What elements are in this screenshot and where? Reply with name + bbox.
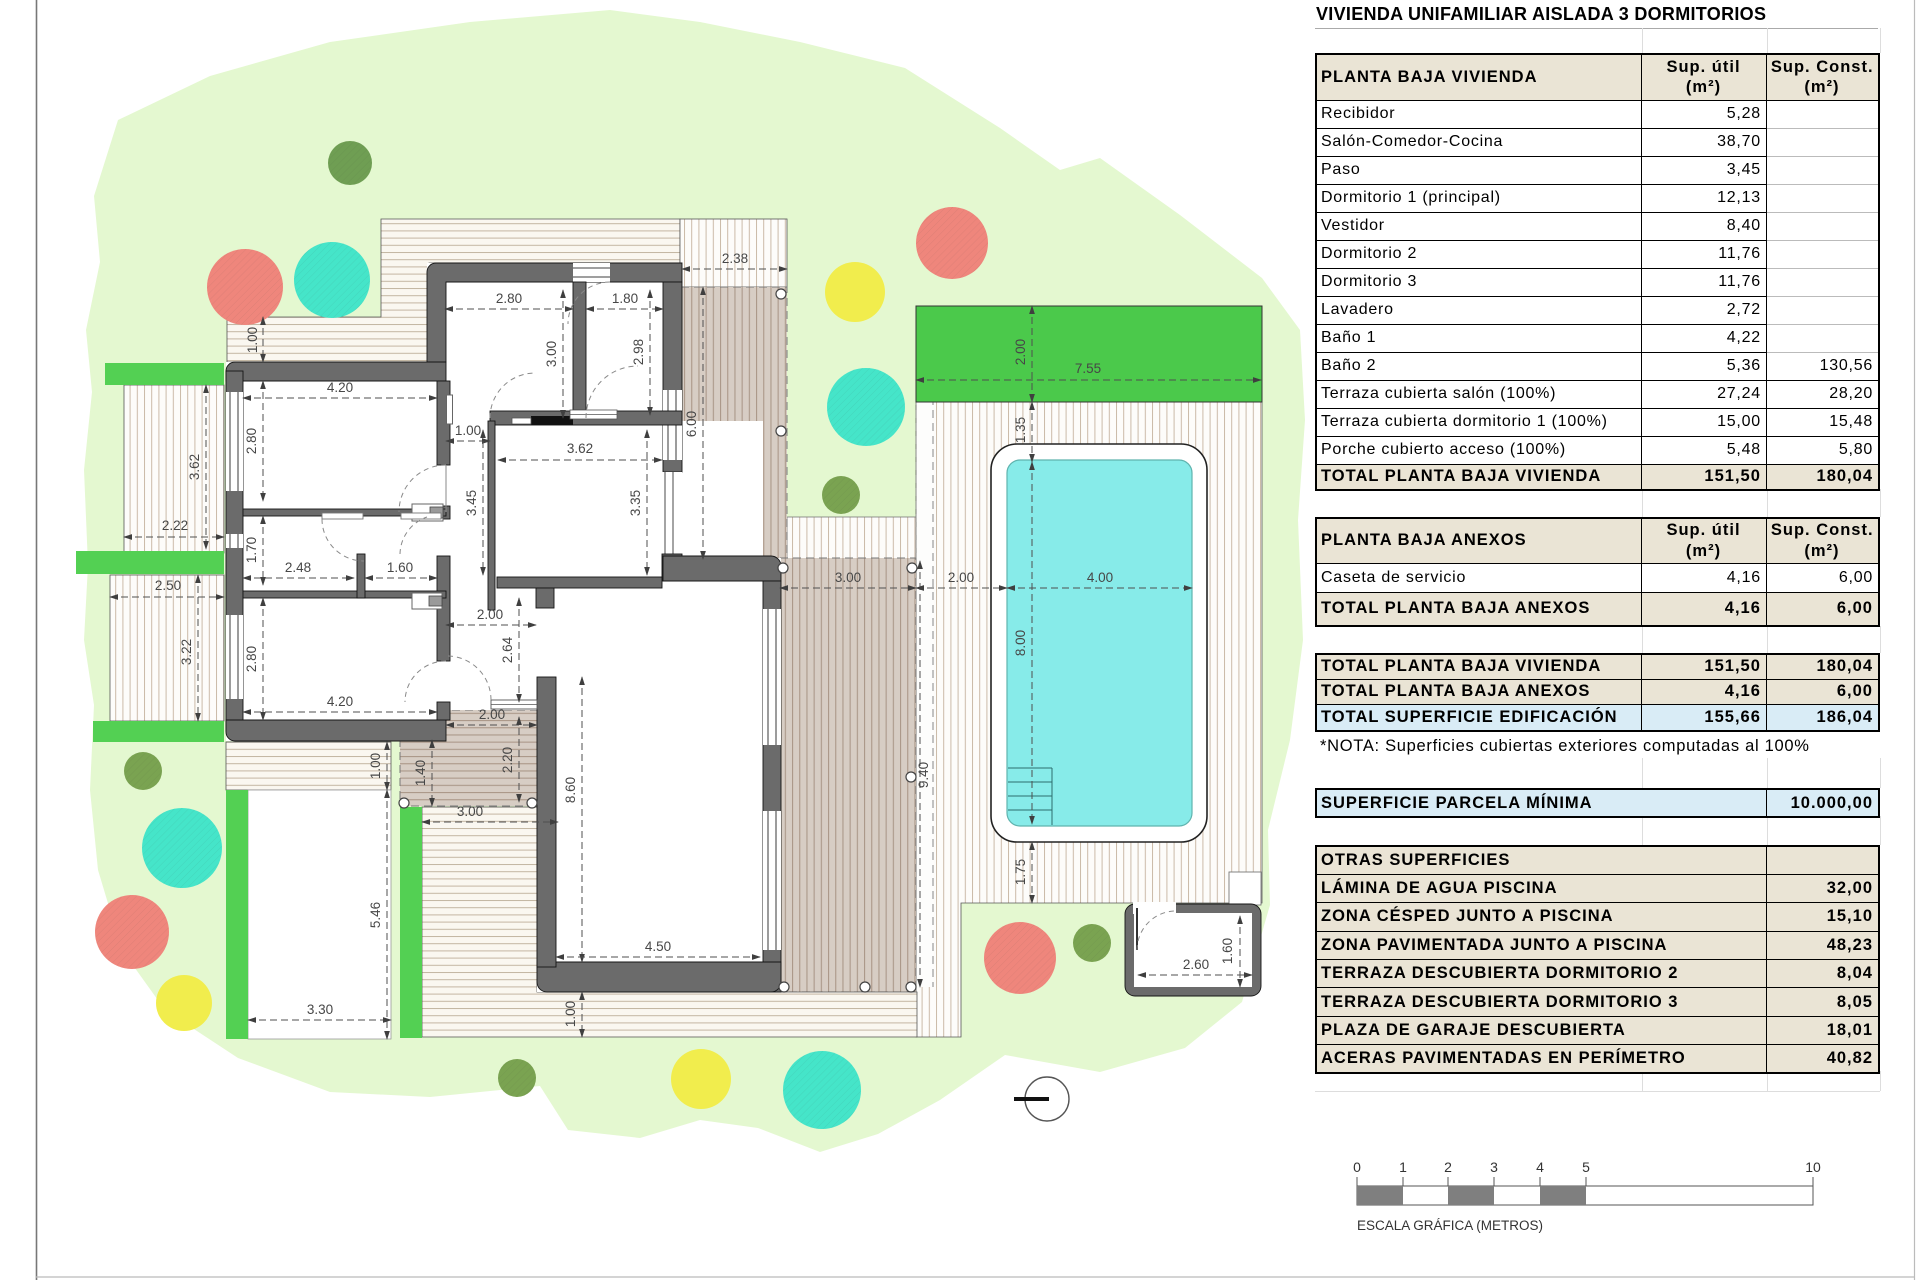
svg-text:6.00: 6.00: [684, 411, 699, 437]
svg-text:2.00: 2.00: [477, 607, 503, 622]
svg-text:3.00: 3.00: [835, 570, 861, 585]
svg-text:5.46: 5.46: [368, 902, 383, 928]
svg-text:3.62: 3.62: [567, 441, 593, 456]
svg-text:3.22: 3.22: [179, 639, 194, 665]
svg-text:10: 10: [1805, 1159, 1821, 1175]
svg-text:1.00: 1.00: [368, 753, 383, 779]
svg-text:1.00: 1.00: [563, 1001, 578, 1027]
svg-text:1.35: 1.35: [1013, 417, 1028, 443]
svg-text:2.00: 2.00: [948, 570, 974, 585]
svg-text:2.22: 2.22: [162, 518, 188, 533]
svg-text:4.50: 4.50: [645, 939, 671, 954]
svg-text:1.00: 1.00: [455, 423, 481, 438]
svg-text:0: 0: [1353, 1159, 1361, 1175]
svg-text:3.62: 3.62: [187, 454, 202, 480]
svg-text:4.20: 4.20: [327, 380, 353, 395]
svg-text:1.60: 1.60: [1220, 938, 1235, 964]
svg-text:9.40: 9.40: [916, 762, 931, 788]
svg-text:3.45: 3.45: [464, 490, 479, 516]
svg-text:2.00: 2.00: [1013, 339, 1028, 365]
svg-text:2.60: 2.60: [1183, 957, 1209, 972]
svg-text:2.20: 2.20: [500, 747, 515, 773]
svg-text:1.40: 1.40: [413, 760, 428, 786]
svg-text:1.75: 1.75: [1013, 859, 1028, 885]
svg-text:1.80: 1.80: [612, 291, 638, 306]
svg-text:4.00: 4.00: [1087, 570, 1113, 585]
svg-text:2.80: 2.80: [496, 291, 522, 306]
svg-text:2.50: 2.50: [155, 578, 181, 593]
svg-text:3: 3: [1490, 1159, 1498, 1175]
svg-text:2.00: 2.00: [479, 707, 505, 722]
svg-text:2: 2: [1444, 1159, 1452, 1175]
svg-text:2.48: 2.48: [285, 560, 311, 575]
svg-text:1: 1: [1399, 1159, 1407, 1175]
svg-text:7.55: 7.55: [1075, 361, 1101, 376]
svg-text:8.00: 8.00: [1013, 630, 1028, 656]
svg-text:ESCALA GRÁFICA (METROS): ESCALA GRÁFICA (METROS): [1357, 1218, 1543, 1233]
svg-text:1.60: 1.60: [387, 560, 413, 575]
svg-text:2.98: 2.98: [631, 339, 646, 365]
svg-text:8.60: 8.60: [563, 777, 578, 803]
svg-text:2.64: 2.64: [500, 636, 515, 663]
svg-text:5: 5: [1582, 1159, 1590, 1175]
svg-text:3.30: 3.30: [307, 1002, 333, 1017]
svg-text:4.20: 4.20: [327, 694, 353, 709]
svg-text:4: 4: [1536, 1159, 1544, 1175]
svg-text:3.00: 3.00: [457, 804, 483, 819]
svg-text:2.80: 2.80: [244, 646, 259, 672]
svg-text:3.35: 3.35: [628, 490, 643, 516]
svg-text:2.38: 2.38: [722, 251, 748, 266]
svg-text:2.80: 2.80: [244, 428, 259, 454]
svg-text:3.00: 3.00: [544, 341, 559, 367]
svg-text:1.00: 1.00: [245, 327, 260, 353]
svg-text:1.70: 1.70: [244, 537, 259, 563]
